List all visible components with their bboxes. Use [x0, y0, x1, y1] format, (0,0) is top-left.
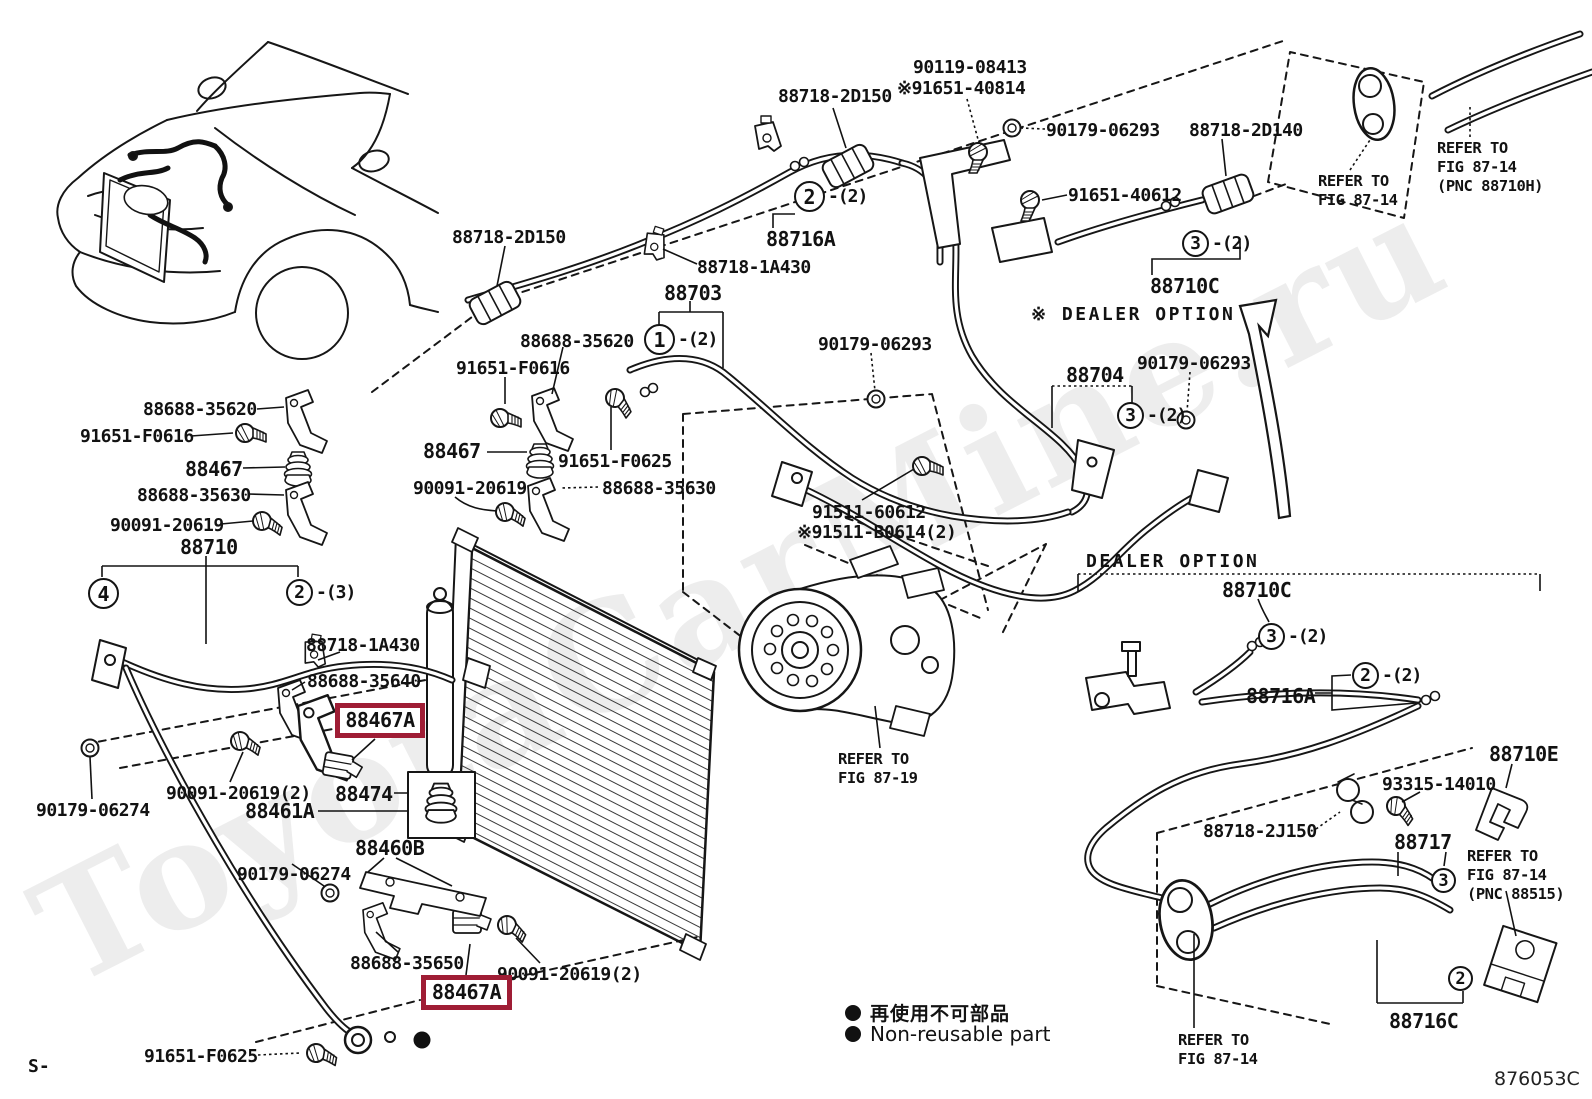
part-label-90091-20619x2-b: 90091-20619(2) — [497, 965, 642, 984]
part-label-88718-2D150-b: 88718-2D150 — [452, 228, 566, 247]
direction-arrow — [1240, 300, 1290, 518]
page-corner-code: S- — [28, 1056, 50, 1077]
part-label-88710C-b: 88710C — [1222, 580, 1291, 602]
compressor-drawing — [739, 546, 954, 736]
refer-note-fig87-19: REFER TO FIG 87-19 — [838, 750, 918, 788]
highlighted-part-88467A-1[interactable]: 88467A — [335, 703, 425, 738]
part-label-90179-06293-b: 90179-06293 — [818, 335, 932, 354]
part-label-88688-35620-b: 88688-35620 — [143, 400, 257, 419]
refer-note-fig87-14-b: REFER TO FIG 87-14 — [1178, 1031, 1258, 1069]
part-label-88688-35650: 88688-35650 — [350, 954, 464, 973]
non-reusable-bullet-icon — [845, 1026, 861, 1042]
part-label-88710C-a: 88710C — [1150, 276, 1219, 298]
callout-1: 1-(2) — [644, 324, 717, 355]
part-label-91511-B0614: ※91511-B0614(2) — [797, 523, 956, 542]
part-label-91651-40814: ※91651-40814 — [897, 79, 1025, 98]
legend-non-reusable-en: Non-reusable part — [845, 1022, 1050, 1046]
non-reusable-bullet-icon — [845, 1005, 861, 1021]
refer-note-fig87-14-a: REFER TO FIG 87-14 — [1318, 172, 1398, 210]
part-label-88718-2D150-a: 88718-2D150 — [778, 87, 892, 106]
part-label-88703: 88703 — [664, 283, 722, 305]
diagram-line-art — [0, 0, 1592, 1099]
part-label-93315-14010: 93315-14010 — [1382, 775, 1496, 794]
part-label-88688-35630-a: 88688-35630 — [602, 479, 716, 498]
part-label-88467-a: 88467 — [423, 441, 481, 463]
part-label-88461A: 88461A — [245, 801, 314, 823]
part-label-90179-06293-c: 90179-06293 — [1137, 354, 1251, 373]
part-label-88710: 88710 — [180, 537, 238, 559]
callout-3-topright: 3-(2) — [1182, 230, 1251, 257]
callout-2-bottom: 2 — [1448, 966, 1476, 991]
callout-3-bottom: 3 — [1431, 868, 1459, 893]
part-label-90179-06274-a: 90179-06274 — [36, 801, 150, 820]
callout-2-dealer: 2-(2) — [1352, 662, 1421, 689]
part-label-88716A-a: 88716A — [766, 229, 835, 251]
refer-note-fig87-14-pnc88710H: REFER TO FIG 87-14 (PNC 88710H) — [1437, 139, 1543, 196]
part-label-88717: 88717 — [1394, 832, 1452, 854]
part-label-91651-F0616-a: 91651-F0616 — [456, 359, 570, 378]
part-label-88704: 88704 — [1066, 365, 1124, 387]
part-label-88718-2D140: 88718-2D140 — [1189, 121, 1303, 140]
part-label-88467-b: 88467 — [185, 459, 243, 481]
part-label-91651-F0616-b: 91651-F0616 — [80, 427, 194, 446]
part-label-88467A-1: 88467A — [345, 710, 414, 732]
part-label-90179-06293-a: 90179-06293 — [1046, 121, 1160, 140]
part-label-91651-40612: 91651-40612 — [1068, 186, 1182, 205]
callout-2-left: 2-(3) — [286, 579, 355, 606]
part-label-88474: 88474 — [335, 784, 393, 806]
part-label-88716C: 88716C — [1389, 1011, 1458, 1033]
part-label-88718-1A430-a: 88718-1A430 — [697, 258, 811, 277]
part-label-88688-35630-b: 88688-35630 — [137, 486, 251, 505]
dealer-option-note: ※ DEALER OPTION — [1031, 305, 1235, 324]
callout-3-dealer: 3-(2) — [1258, 623, 1327, 650]
part-label-90119-08413: 90119-08413 — [913, 58, 1027, 77]
legend-text-en: Non-reusable part — [870, 1022, 1050, 1046]
part-label-88710E: 88710E — [1489, 744, 1558, 766]
non-reusable-dot — [414, 1032, 431, 1049]
fasteners-and-fittings — [82, 66, 1557, 1066]
part-label-88688-35620-a: 88688-35620 — [520, 332, 634, 351]
part-label-88716A-b: 88716A — [1246, 686, 1315, 708]
part-label-90091-20619-a: 90091-20619 — [413, 479, 527, 498]
part-label-91511-60612: 91511-60612 — [812, 503, 926, 522]
vehicle-sketch — [57, 42, 438, 359]
part-label-88718-2J150: 88718-2J150 — [1203, 822, 1317, 841]
callout-4: 4 — [88, 578, 122, 609]
dealer-option-heading: DEALER OPTION — [1086, 552, 1259, 571]
highlighted-part-88467A-2[interactable]: 88467A — [421, 975, 512, 1010]
part-label-88688-35640: 88688-35640 — [307, 672, 421, 691]
parts-diagram-page: ToyotaCarMine.ru — [0, 0, 1592, 1099]
pipe-connector-88718-2D150-left — [467, 279, 523, 326]
refer-note-fig87-14-pnc88515: REFER TO FIG 87-14 (PNC 88515) — [1467, 847, 1564, 904]
pipe-connector-88718-2D140 — [1201, 173, 1256, 216]
part-label-88460B: 88460B — [355, 838, 424, 860]
part-label-91651-F0625-a: 91651-F0625 — [558, 452, 672, 471]
part-label-90091-20619-b: 90091-20619 — [110, 516, 224, 535]
part-label-90179-06274-b: 90179-06274 — [237, 865, 351, 884]
callout-3-mid: 3-(2) — [1117, 402, 1186, 429]
part-label-91651-F0625-b: 91651-F0625 — [144, 1047, 258, 1066]
figure-code: 876053C — [1494, 1068, 1580, 1090]
callout-2-top: 2-(2) — [794, 181, 867, 212]
part-label-88718-1A430-b: 88718-1A430 — [306, 636, 420, 655]
part-label-88467A-2: 88467A — [432, 982, 501, 1004]
construction-dashes — [86, 40, 1472, 1042]
